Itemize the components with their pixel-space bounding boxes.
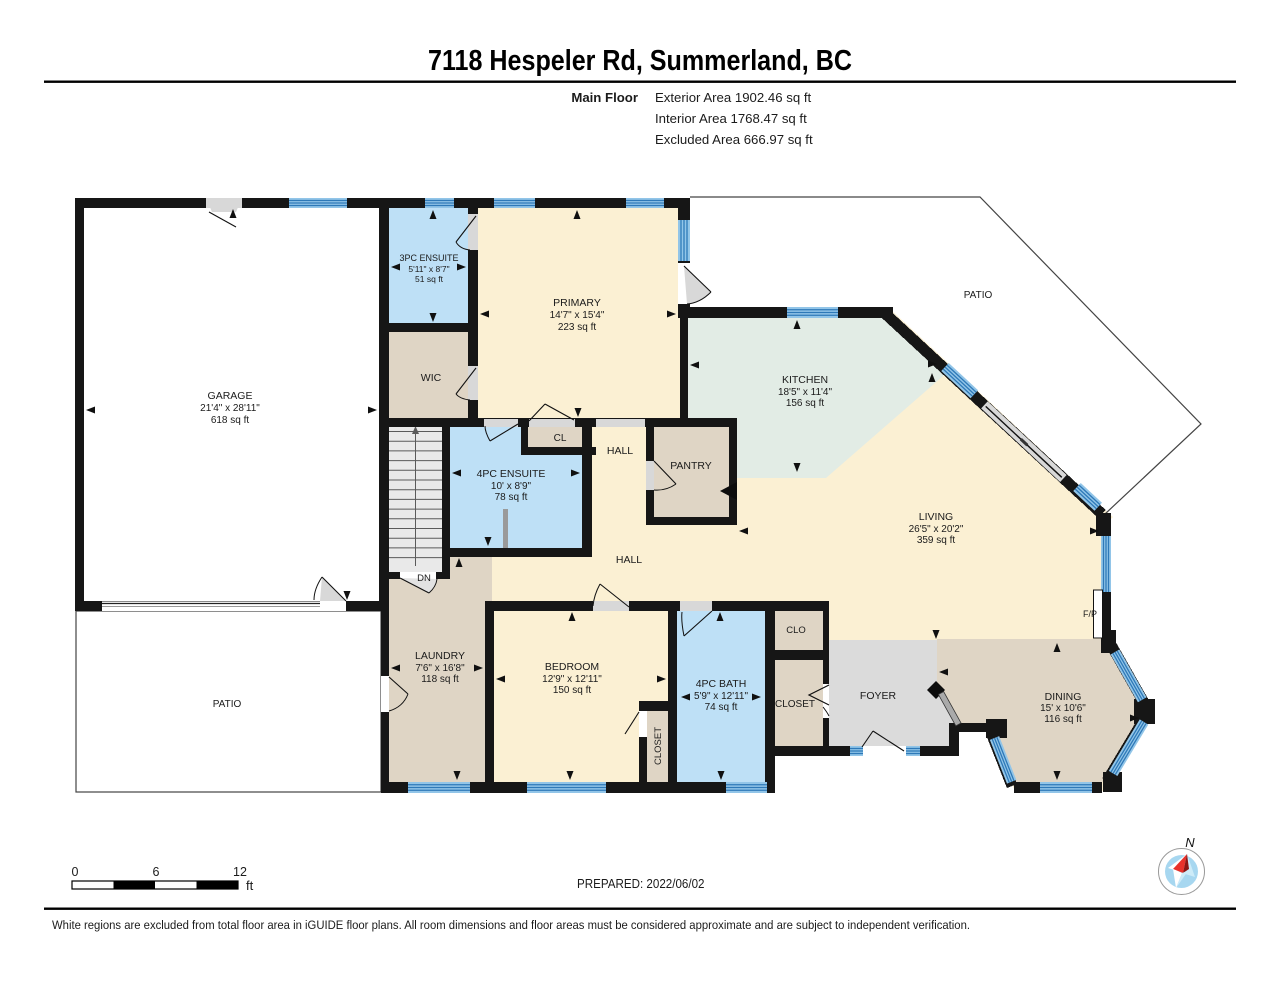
svg-text:5'9" x 12'11": 5'9" x 12'11" [694,691,749,702]
svg-text:GARAGE: GARAGE [208,390,253,402]
svg-text:7118 Hespeler Rd, Summerland,: 7118 Hespeler Rd, Summerland, BC [428,45,852,77]
svg-text:PATIO: PATIO [213,699,242,710]
svg-text:74 sq ft: 74 sq ft [705,702,738,713]
svg-text:WIC: WIC [421,372,442,384]
svg-text:N: N [1185,835,1195,850]
svg-text:F/P: F/P [1083,609,1097,619]
svg-text:PANTRY: PANTRY [670,460,712,472]
svg-text:3PC ENSUITE: 3PC ENSUITE [399,253,458,263]
svg-text:116 sq ft: 116 sq ft [1044,714,1082,725]
svg-text:BEDROOM: BEDROOM [545,661,599,673]
svg-text:6: 6 [153,865,160,879]
svg-text:51 sq ft: 51 sq ft [415,274,444,284]
svg-text:4PC ENSUITE: 4PC ENSUITE [477,468,546,480]
svg-text:7'6" x 16'8": 7'6" x 16'8" [415,663,465,674]
svg-text:DN: DN [417,573,431,584]
svg-text:0: 0 [72,865,79,879]
svg-text:5'11" x 8'7": 5'11" x 8'7" [408,264,449,274]
svg-text:Interior Area 1768.47 sq ft: Interior Area 1768.47 sq ft [655,111,807,126]
svg-text:Exterior Area 1902.46 sq ft: Exterior Area 1902.46 sq ft [655,90,811,105]
svg-text:PRIMARY: PRIMARY [553,297,601,309]
svg-text:LAUNDRY: LAUNDRY [415,650,465,662]
svg-text:150 sq ft: 150 sq ft [553,685,592,696]
svg-text:HALL: HALL [607,445,633,457]
svg-text:15' x 10'6": 15' x 10'6" [1040,703,1086,714]
svg-text:CLO: CLO [786,625,806,636]
svg-text:78 sq ft: 78 sq ft [495,492,528,503]
svg-text:359 sq ft: 359 sq ft [917,535,956,546]
svg-text:12'9" x 12'11": 12'9" x 12'11" [542,674,602,685]
svg-text:Main Floor: Main Floor [571,90,638,105]
svg-text:DINING: DINING [1045,691,1082,703]
svg-text:ft: ft [246,878,254,893]
svg-text:21'4" x 28'11": 21'4" x 28'11" [200,403,260,414]
svg-text:PREPARED: 2022/06/02: PREPARED: 2022/06/02 [577,876,705,891]
svg-text:118 sq ft: 118 sq ft [421,674,459,685]
svg-text:156 sq ft: 156 sq ft [786,398,825,409]
svg-text:14'7" x 15'4": 14'7" x 15'4" [550,310,605,321]
svg-text:CL: CL [554,433,567,444]
svg-text:HALL: HALL [616,554,642,566]
svg-text:FOYER: FOYER [860,690,897,702]
svg-text:Excluded Area 666.97 sq ft: Excluded Area 666.97 sq ft [655,132,813,147]
svg-text:CLOSET: CLOSET [653,727,664,765]
svg-text:618 sq ft: 618 sq ft [211,415,250,426]
svg-text:223 sq ft: 223 sq ft [558,322,597,333]
svg-text:18'5" x 11'4": 18'5" x 11'4" [778,387,833,398]
svg-text:10' x 8'9": 10' x 8'9" [491,481,532,492]
svg-text:26'5" x 20'2": 26'5" x 20'2" [909,524,964,535]
svg-text:White regions are excluded fro: White regions are excluded from total fl… [52,918,970,932]
svg-text:12: 12 [233,865,247,879]
svg-text:KITCHEN: KITCHEN [782,374,828,386]
svg-text:CLOSET: CLOSET [775,699,815,710]
svg-text:PATIO: PATIO [964,290,993,301]
svg-text:4PC BATH: 4PC BATH [696,678,747,690]
svg-text:LIVING: LIVING [919,511,953,523]
